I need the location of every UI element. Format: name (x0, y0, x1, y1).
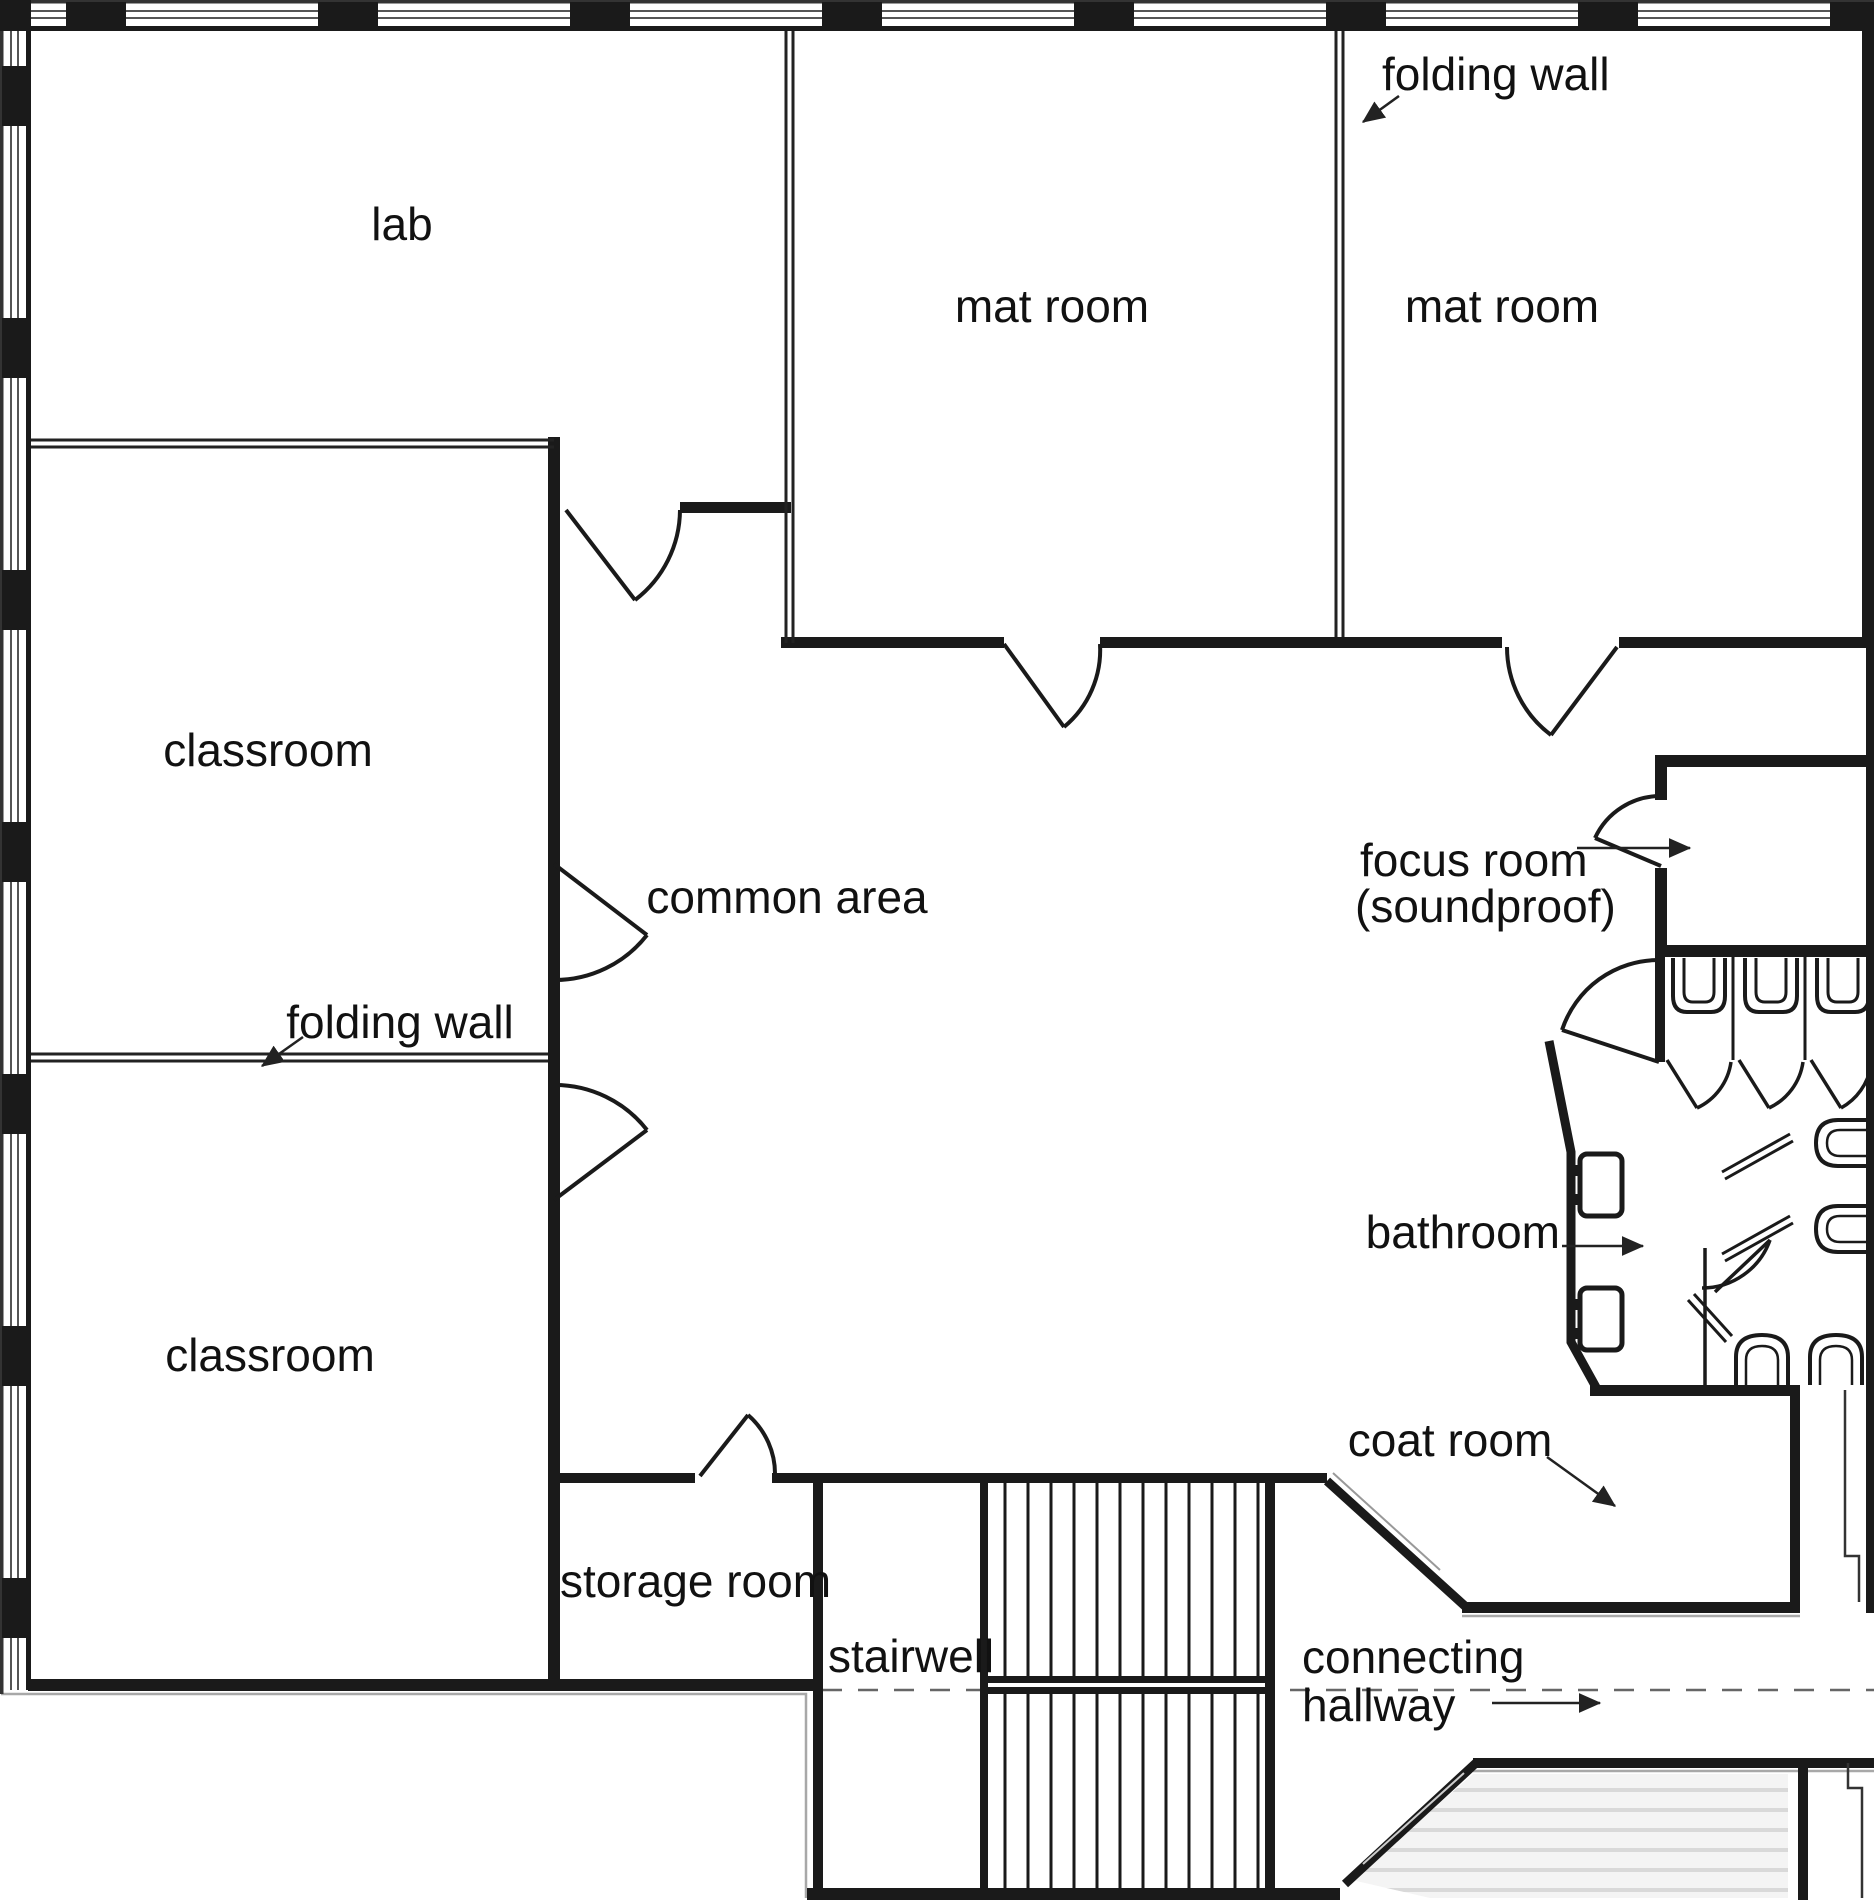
wall-storage-top-right (772, 1473, 1327, 1483)
window-mullions-left (2, 66, 29, 1638)
wall-matroom-bottom-2 (1100, 637, 1502, 648)
wall-focus-left-lower (1655, 868, 1667, 945)
lower-level-continuation (1340, 1774, 1800, 1898)
room-connecting-hallway (826, 1616, 1874, 1756)
wall-classroom-right (548, 437, 560, 1690)
wall-coatroom-right (1790, 1385, 1800, 1613)
window-band-top (0, 0, 1874, 31)
room-classroom-upper (31, 450, 546, 1050)
door-lab (566, 510, 680, 600)
wall-coatroom-bottom (1462, 1602, 1800, 1613)
room-bathroom (1578, 960, 1870, 1380)
room-common-area (565, 655, 1525, 1455)
floor-plan-page: lab classroom classroom mat room mat roo… (0, 0, 1874, 1900)
room-lab (31, 31, 781, 436)
wall-focus-top (1655, 755, 1874, 767)
room-focus (1670, 770, 1870, 942)
floor-plan-drawing: lab classroom classroom mat room mat roo… (0, 0, 1874, 1900)
wall-stairwell-left (813, 1478, 823, 1893)
room-coat (1545, 1400, 1787, 1598)
room-mat-right (1347, 31, 1859, 634)
door-focus-room (1595, 796, 1661, 866)
wall-bathroom-bottom (1590, 1385, 1800, 1396)
wall-focus-left-upper (1655, 755, 1667, 800)
room-mat-left (797, 31, 1333, 634)
wall-stairwell-bottom (807, 1888, 1340, 1900)
wall-focus-bottom (1655, 945, 1874, 957)
wall-hallway-bottom (1473, 1758, 1874, 1768)
room-storage (565, 1486, 810, 1676)
wall-below-hallway (1798, 1763, 1808, 1900)
wall-matroom-bottom-3 (1619, 637, 1864, 648)
wall-diagonal-upper (1327, 1481, 1466, 1607)
wall-right-top (1862, 28, 1874, 648)
room-classroom-lower (31, 1065, 546, 1675)
window-mullions-top (66, 2, 1874, 29)
wall-matroom-bottom-1 (781, 637, 1004, 648)
wall-common-top-stub (680, 502, 791, 513)
wall-storage-top-left (555, 1473, 695, 1483)
window-band-left (0, 0, 31, 1694)
wall-classroom-bottom (28, 1679, 813, 1691)
